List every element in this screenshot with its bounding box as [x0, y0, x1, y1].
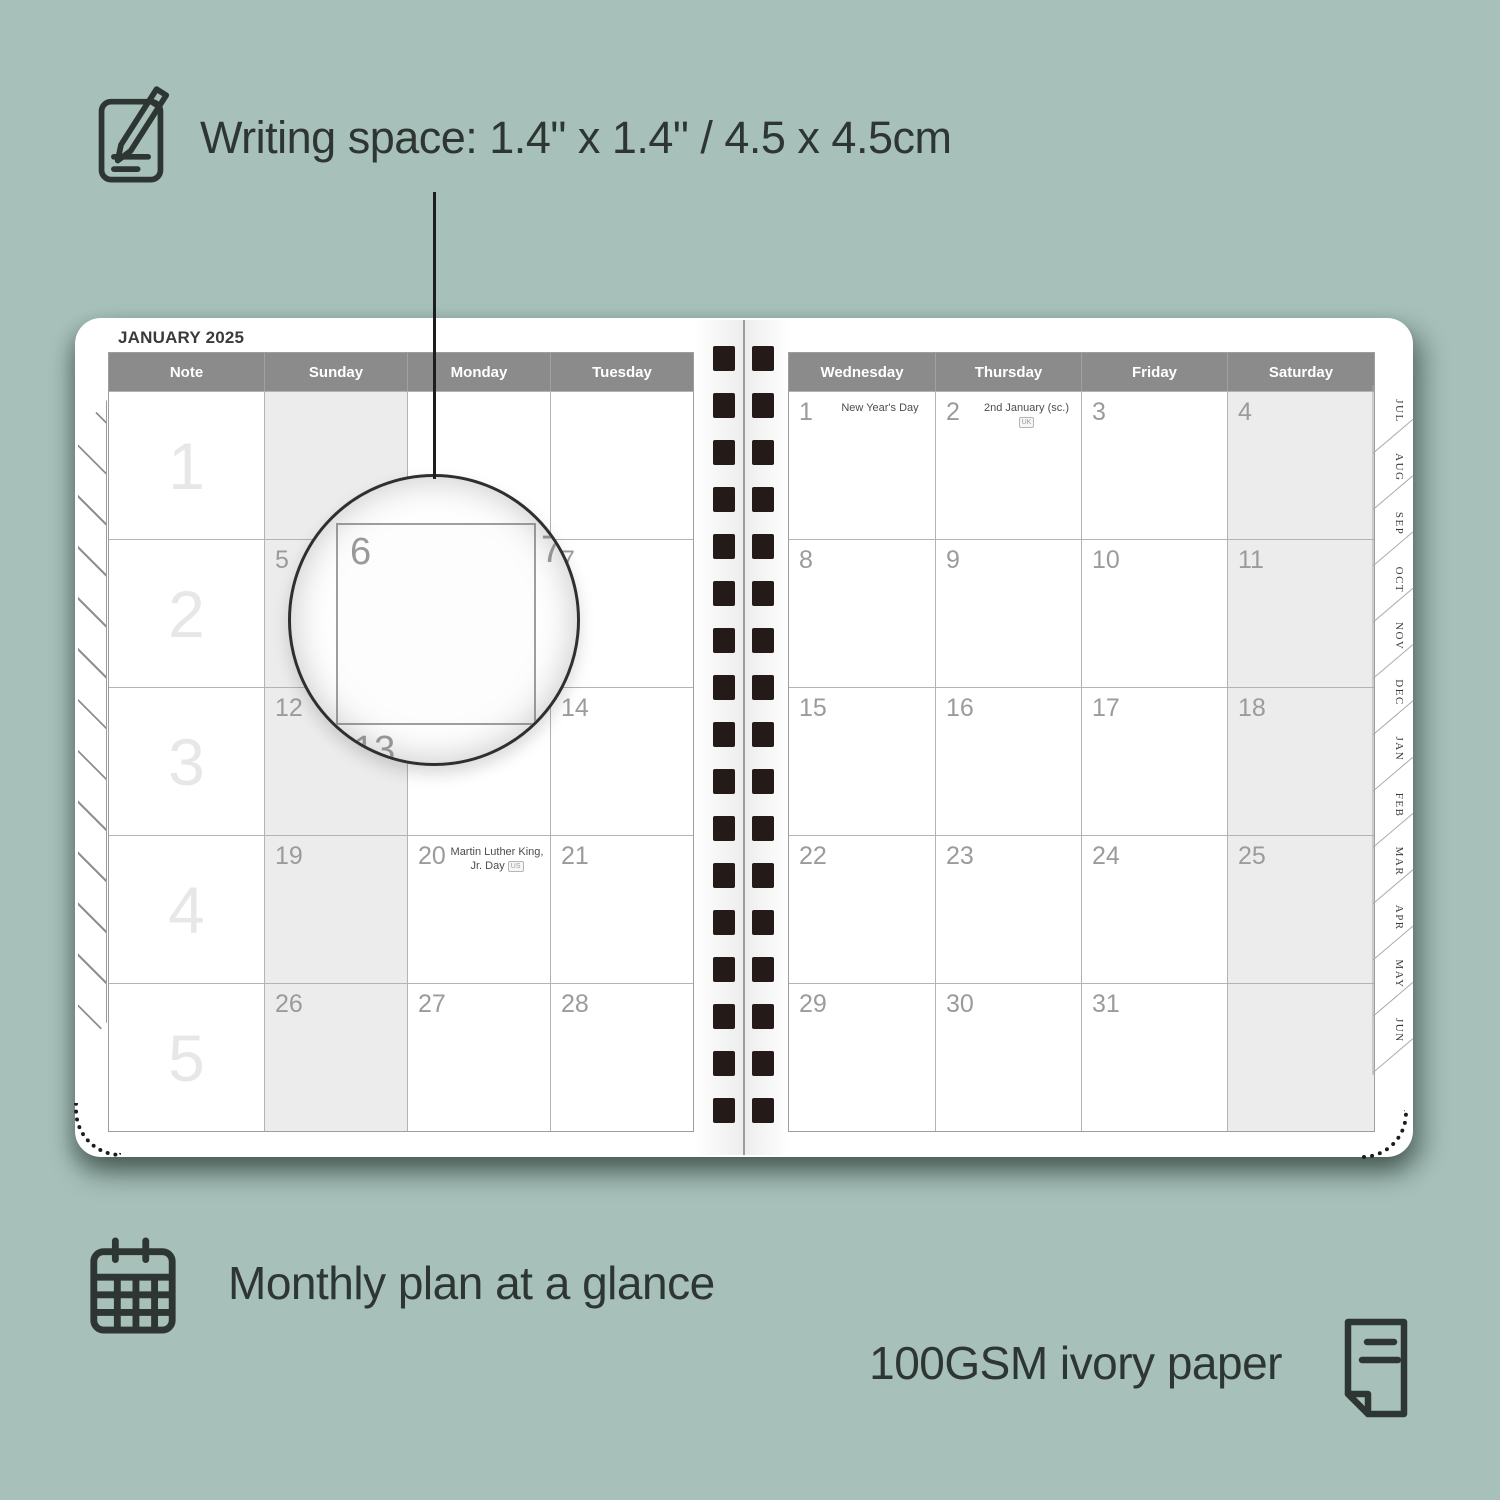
day-number: 18: [1238, 694, 1266, 723]
note-cell-week-3: 3: [109, 688, 264, 835]
month-tab-jul: JUL: [1393, 399, 1405, 422]
week-row: 41920Martin Luther King, Jr. Day US21: [109, 835, 693, 983]
note-cell-week-4: 4: [109, 836, 264, 983]
tab-separator: [1373, 757, 1413, 791]
weekday-header-row: WednesdayThursdayFridaySaturday: [789, 353, 1374, 391]
week-row: 1New Year's Day 22nd January (sc.) UK34: [789, 391, 1374, 539]
weekday-header-row: NoteSundayMondayTuesday: [109, 353, 693, 391]
spiral-punch-hole: [713, 863, 735, 888]
day-number: 31: [1092, 990, 1120, 1019]
spiral-punch-hole: [752, 534, 774, 559]
spiral-punch-hole: [713, 534, 735, 559]
weekday-header-sunday: Sunday: [264, 353, 407, 391]
week-row: 15161718: [789, 687, 1374, 835]
day-number: 22: [799, 842, 827, 871]
tab-separator: [1373, 476, 1413, 510]
spiral-punch-hole: [752, 957, 774, 982]
center-crease-line: [743, 320, 745, 1155]
spiral-punch-hole: [713, 1051, 735, 1076]
spiral-punch-hole: [713, 957, 735, 982]
tab-separator: [1373, 982, 1413, 1016]
day-cell-10: 10: [1081, 540, 1227, 687]
weekday-header-note: Note: [109, 353, 264, 391]
month-title: JANUARY 2025: [118, 328, 244, 348]
tab-separator: [1373, 588, 1413, 622]
day-number: 8: [799, 546, 813, 575]
spiral-punch-hole: [752, 393, 774, 418]
day-cell-30: 30: [935, 984, 1081, 1131]
day-cell-19: 19: [264, 836, 407, 983]
day-number: 5: [275, 546, 289, 575]
page-edge-hatching: [78, 400, 107, 1055]
day-cell-31: 31: [1081, 984, 1227, 1131]
day-cell-24: 24: [1081, 836, 1227, 983]
day-number: 23: [946, 842, 974, 871]
week-row: 891011: [789, 539, 1374, 687]
spiral-punch-hole: [713, 628, 735, 653]
day-cell-1: 1New Year's Day: [789, 392, 935, 539]
spiral-punch-hole: [752, 487, 774, 512]
spiral-punch-hole: [713, 816, 735, 841]
day-cell-8: 8: [789, 540, 935, 687]
weekday-header-thursday: Thursday: [935, 353, 1081, 391]
spiral-punch-hole: [752, 816, 774, 841]
day-number: 3: [1092, 398, 1106, 427]
day-number: 27: [418, 990, 446, 1019]
day-cell-21: 21: [550, 836, 693, 983]
spiral-punch-hole: [713, 393, 735, 418]
spiral-punch-hole: [752, 1004, 774, 1029]
tab-separator: [1373, 645, 1413, 679]
right-page-calendar-grid: WednesdayThursdayFridaySaturday1New Year…: [788, 352, 1375, 1132]
spiral-punch-hole: [752, 1051, 774, 1076]
day-cell-11: 11: [1227, 540, 1374, 687]
spiral-punch-hole: [713, 769, 735, 794]
holiday-label: Martin Luther King, Jr. Day US: [448, 845, 546, 874]
spiral-punch-hole: [713, 910, 735, 935]
paper-quality-label: 100GSM ivory paper: [700, 1336, 1282, 1390]
month-tab-jun: JUN: [1393, 1018, 1405, 1043]
magnifier-circle: 6 7 13: [288, 474, 580, 766]
month-tab-apr: APR: [1393, 905, 1405, 931]
day-cell-18: 18: [1227, 688, 1374, 835]
spiral-punch-hole: [713, 346, 735, 371]
week-row: 22232425: [789, 835, 1374, 983]
spiral-punch-hole: [713, 1004, 735, 1029]
spiral-punch-hole: [713, 440, 735, 465]
tab-separator: [1373, 926, 1413, 960]
day-cell-empty: [1227, 984, 1374, 1131]
tab-separator: [1373, 419, 1413, 453]
day-cell-empty: [550, 392, 693, 539]
day-number: 2: [946, 398, 960, 427]
month-tabs: JULAUGSEPOCTNOVDECJANFEBMARAPRMAYJUN: [1370, 383, 1415, 1083]
day-cell-20: 20Martin Luther King, Jr. Day US: [407, 836, 550, 983]
tab-separator: [1373, 1039, 1413, 1073]
week-row: 293031: [789, 983, 1374, 1131]
day-number: 25: [1238, 842, 1266, 871]
month-tab-mar: MAR: [1393, 847, 1405, 877]
day-number: 24: [1092, 842, 1120, 871]
day-number: 19: [275, 842, 303, 871]
spiral-punch-hole: [713, 675, 735, 700]
day-cell-29: 29: [789, 984, 935, 1131]
day-number: 29: [799, 990, 827, 1019]
day-number: 10: [1092, 546, 1120, 575]
spiral-punch-hole: [752, 722, 774, 747]
day-cell-4: 4: [1227, 392, 1374, 539]
day-cell-25: 25: [1227, 836, 1374, 983]
note-cell-week-2: 2: [109, 540, 264, 687]
planner-product-image: Writing space: 1.4" x 1.4" / 4.5 x 4.5cm…: [0, 0, 1500, 1500]
spiral-punch-hole: [752, 440, 774, 465]
weekday-header-wednesday: Wednesday: [789, 353, 935, 391]
month-tab-feb: FEB: [1393, 793, 1405, 818]
day-cell-27: 27: [407, 984, 550, 1131]
spiral-punch-hole: [752, 769, 774, 794]
holiday-label: 2nd January (sc.) UK: [976, 401, 1077, 430]
day-number: 21: [561, 842, 589, 871]
note-cell-week-1: 1: [109, 392, 264, 539]
day-number: 14: [561, 694, 589, 723]
day-cell-26: 26: [264, 984, 407, 1131]
paper-sheet-icon: [1320, 1314, 1414, 1422]
day-cell-28: 28: [550, 984, 693, 1131]
day-number: 1: [799, 398, 813, 427]
day-number: 28: [561, 990, 589, 1019]
calendar-icon: [84, 1236, 182, 1336]
day-cell-3: 3: [1081, 392, 1227, 539]
monthly-plan-label: Monthly plan at a glance: [228, 1256, 715, 1310]
day-cell-22: 22: [789, 836, 935, 983]
spiral-punch-hole: [713, 581, 735, 606]
month-tab-aug: AUG: [1393, 453, 1405, 481]
spiral-punch-hole: [713, 1098, 735, 1123]
month-tab-nov: NOV: [1393, 622, 1405, 650]
day-number: 15: [799, 694, 827, 723]
spiral-punch-hole: [752, 910, 774, 935]
writing-space-label: Writing space: 1.4" x 1.4" / 4.5 x 4.5cm: [200, 112, 951, 164]
day-number: 30: [946, 990, 974, 1019]
tab-separator: [1373, 701, 1413, 735]
spiral-punch-hole: [752, 675, 774, 700]
day-number: 9: [946, 546, 960, 575]
day-cell-14: 14: [550, 688, 693, 835]
day-cell-2: 22nd January (sc.) UK: [935, 392, 1081, 539]
weekday-header-friday: Friday: [1081, 353, 1227, 391]
day-cell-17: 17: [1081, 688, 1227, 835]
month-tab-jan: JAN: [1393, 736, 1405, 761]
month-tab-dec: DEC: [1393, 679, 1405, 706]
writing-pencil-icon: [93, 80, 188, 188]
weekday-header-saturday: Saturday: [1227, 353, 1374, 391]
month-tab-sep: SEP: [1393, 512, 1405, 535]
spiral-punch-hole: [752, 346, 774, 371]
spiral-punch-hole: [713, 722, 735, 747]
day-cell-15: 15: [789, 688, 935, 835]
tab-separator: [1373, 532, 1413, 566]
spiral-punch-hole: [752, 863, 774, 888]
country-badge: US: [508, 861, 524, 872]
day-cell-23: 23: [935, 836, 1081, 983]
day-number: 4: [1238, 398, 1252, 427]
note-cell-week-5: 5: [109, 984, 264, 1131]
day-number: 26: [275, 990, 303, 1019]
day-number: 12: [275, 694, 303, 723]
month-tab-oct: OCT: [1393, 567, 1405, 594]
spiral-punch-hole: [752, 581, 774, 606]
day-number: 16: [946, 694, 974, 723]
month-tab-may: MAY: [1393, 959, 1405, 988]
spiral-punch-hole: [713, 487, 735, 512]
tab-separator: [1373, 813, 1413, 847]
tab-separator: [1373, 870, 1413, 904]
day-cell-16: 16: [935, 688, 1081, 835]
day-number: 11: [1238, 546, 1264, 575]
spiral-punch-hole: [752, 1098, 774, 1123]
spiral-punch-hole: [752, 628, 774, 653]
magnifier-glass-shading: [291, 477, 577, 763]
day-number: 17: [1092, 694, 1120, 723]
day-cell-9: 9: [935, 540, 1081, 687]
day-number: 20: [418, 842, 446, 871]
weekday-header-tuesday: Tuesday: [550, 353, 693, 391]
country-badge: UK: [1019, 417, 1035, 428]
week-row: 5262728: [109, 983, 693, 1131]
weekday-header-monday: Monday: [407, 353, 550, 391]
holiday-label: New Year's Day: [829, 401, 931, 415]
magnifier-pointer-line: [433, 192, 436, 479]
